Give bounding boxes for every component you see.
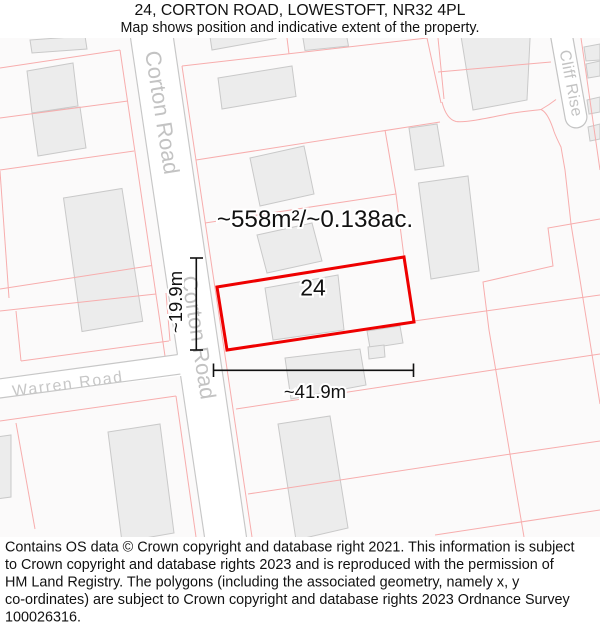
svg-text:HM Land Registry. The polygons: HM Land Registry. The polygons (includin…: [5, 575, 520, 591]
svg-text:24: 24: [300, 275, 326, 301]
svg-text:~558m²/~0.138ac.: ~558m²/~0.138ac.: [217, 206, 413, 233]
svg-text:~41.9m: ~41.9m: [284, 381, 346, 402]
svg-text:100026316.: 100026316.: [5, 609, 81, 625]
svg-text:24, CORTON ROAD, LOWESTOFT, NR: 24, CORTON ROAD, LOWESTOFT, NR32 4PL: [135, 2, 466, 19]
svg-text:to Crown copyright and databas: to Crown copyright and database rights 2…: [5, 557, 555, 573]
svg-text:Map shows position and indicat: Map shows position and indicative extent…: [121, 20, 480, 36]
svg-text:Contains OS data © Crown copyr: Contains OS data © Crown copyright and d…: [5, 539, 574, 555]
svg-text:~19.9m: ~19.9m: [165, 271, 186, 333]
svg-text:co-ordinates) are subject to C: co-ordinates) are subject to Crown copyr…: [5, 592, 571, 608]
